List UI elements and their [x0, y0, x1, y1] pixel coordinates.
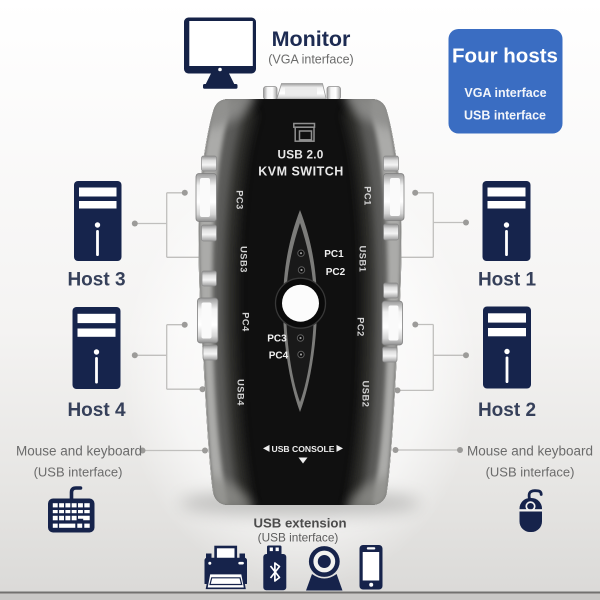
svg-text:PC2: PC2 [326, 267, 346, 278]
svg-text:PC2: PC2 [356, 317, 366, 337]
svg-text:USB extension: USB extension [253, 516, 346, 531]
svg-text:Host 3: Host 3 [67, 270, 125, 291]
svg-text:PC4: PC4 [269, 350, 289, 361]
svg-text:KVM SWITCH: KVM SWITCH [258, 165, 344, 179]
svg-text:USB3: USB3 [239, 246, 249, 273]
svg-text:PC3: PC3 [235, 190, 245, 210]
svg-text:Host 2: Host 2 [478, 400, 536, 421]
svg-text:Four hosts: Four hosts [452, 45, 558, 68]
svg-text:PC1: PC1 [363, 186, 373, 206]
svg-text:(USB interface): (USB interface) [34, 465, 123, 480]
svg-text:USB 2.0: USB 2.0 [278, 148, 324, 162]
svg-text:PC1: PC1 [324, 249, 344, 260]
svg-text:Mouse and keyboard: Mouse and keyboard [16, 444, 142, 459]
svg-text:Host 4: Host 4 [67, 400, 126, 421]
svg-text:PC4: PC4 [241, 312, 251, 332]
svg-text:(VGA interface): (VGA interface) [268, 53, 353, 67]
svg-text:USB1: USB1 [358, 246, 368, 273]
svg-text:Monitor: Monitor [272, 27, 351, 51]
svg-text:USB CONSOLE: USB CONSOLE [271, 444, 334, 454]
svg-text:Mouse and keyboard: Mouse and keyboard [467, 444, 593, 459]
svg-text:USB4: USB4 [236, 379, 246, 406]
svg-text:USB interface: USB interface [464, 109, 546, 123]
svg-text:USB2: USB2 [361, 381, 371, 408]
svg-text:Host 1: Host 1 [478, 270, 537, 291]
svg-text:(USB interface): (USB interface) [486, 465, 575, 480]
svg-text:PC3: PC3 [267, 334, 287, 345]
svg-text:(USB interface): (USB interface) [258, 531, 339, 545]
svg-text:VGA interface: VGA interface [464, 86, 546, 100]
